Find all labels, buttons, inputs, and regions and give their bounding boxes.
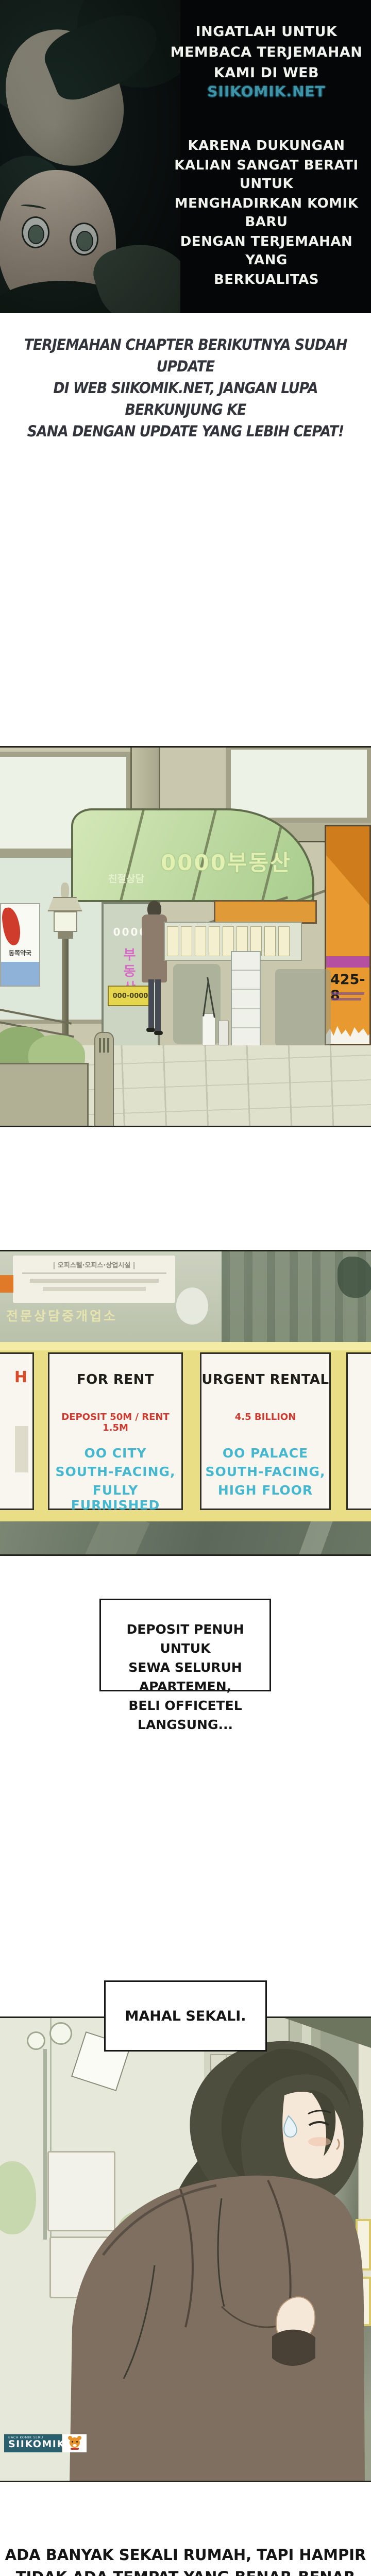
promo-line: MEMBACA TERJEMAHAN xyxy=(166,43,367,62)
card-detail-line: SOUTH-FACING, xyxy=(49,1464,181,1479)
counter-reflection-band xyxy=(0,1521,371,1556)
listing-paper xyxy=(167,926,178,956)
side-sign: 425-8 xyxy=(325,825,371,1045)
site-name: SIIKOMIK.NET xyxy=(207,83,326,100)
listing-card-urgent: URGENT RENTAL 4.5 BILLION OO PALACE SOUT… xyxy=(200,1352,331,1510)
street-lamp-glass xyxy=(54,911,77,932)
passerby-leg xyxy=(155,979,161,1032)
listing-paper xyxy=(209,926,220,956)
side-sign-shade xyxy=(326,826,371,909)
promo-line: BERKUALITAS xyxy=(166,270,367,289)
card-fragment-letter: H xyxy=(14,1368,27,1386)
card-price: 4.5 BILLION xyxy=(201,1412,329,1422)
board-top-strip xyxy=(0,1342,371,1350)
side-sign-skyline xyxy=(326,1021,371,1045)
door-phone-sign: 000-0000 xyxy=(108,986,153,1006)
pharmacy-symbol xyxy=(1,906,22,946)
bollard-slot xyxy=(99,1038,101,1053)
passerby-coat xyxy=(142,914,167,982)
window-notice-header: | 오피스텔·오피스·상업시설 | xyxy=(13,1256,175,1269)
awning-text-big: 0000부동산 xyxy=(161,845,292,877)
promo-panel: INGATLAH UNTUK MEMBACA TERJEMAHAN KAMI D… xyxy=(0,0,371,313)
listing-card-partial-right xyxy=(346,1352,371,1510)
window-notice-divider xyxy=(22,1273,166,1274)
bollard-slot xyxy=(107,1038,109,1053)
street-lamp-finial xyxy=(61,883,69,899)
listing-paper xyxy=(195,926,206,956)
card-detail-line: OO CITY xyxy=(49,1446,181,1461)
card-price: DEPOSIT 50M / RENT 1.5M xyxy=(49,1412,181,1433)
promo-line: MENGHADIRKAN KOMIK BARU xyxy=(166,194,367,231)
pharmacy-name: 동쪽약국 xyxy=(1,948,39,957)
card-faded-text xyxy=(15,1426,28,1472)
side-sign-smallline xyxy=(331,998,361,1001)
listing-board-panel: | 오피스텔·오피스·상업시설 | 전문상담중개업소 H FOR RENT DE… xyxy=(0,1250,371,1556)
plant-pot xyxy=(202,1013,215,1045)
promo-line: KAMI DI WEB SIIKOMIK.NET xyxy=(166,64,367,101)
passerby-shoe xyxy=(146,1028,155,1032)
orange-badge xyxy=(0,1275,13,1293)
awning-text-small: 친절상담 xyxy=(108,871,144,885)
side-sign-smallline xyxy=(331,992,364,995)
caption-line: MAHAL SEKALI. xyxy=(125,2007,246,2026)
narration-line: ADA BANYAK SEKALI RUMAH, TAPI HAMPIR xyxy=(0,2544,371,2566)
window-notice-sign: | 오피스텔·오피스·상업시설 | xyxy=(13,1256,175,1303)
office-window-top: | 오피스텔·오피스·상업시설 | 전문상담중개업소 xyxy=(0,1251,371,1342)
notice-line: TERJEMAHAN CHAPTER BERIKUTNYA SUDAH UPDA… xyxy=(15,334,356,377)
narration-houses: ADA BANYAK SEKALI RUMAH, TAPI HAMPIR TID… xyxy=(0,2544,371,2576)
window-notice-fadedline xyxy=(43,1287,146,1291)
woman-coat xyxy=(70,2176,365,2482)
card-detail-line: FULLY FURNISHED xyxy=(49,1483,181,1513)
promo-art-tint xyxy=(0,0,180,313)
promo-text-block: INGATLAH UNTUK MEMBACA TERJEMAHAN KAMI D… xyxy=(166,0,367,313)
promo-line-prefix: KAMI DI WEB xyxy=(214,65,319,81)
caption-deposit: DEPOSIT PENUH UNTUK SEWA SELURUH APARTEM… xyxy=(99,1599,271,1691)
tiger-mascot-box xyxy=(63,2434,87,2452)
card-detail-line: OO PALACE xyxy=(201,1446,329,1461)
card-detail-line: HIGH FLOOR xyxy=(201,1483,329,1498)
pharmacy-sign: 동쪽약국 xyxy=(0,903,40,987)
webtoon-page: { "promo": { "para1": { "l1": "INGATLAH … xyxy=(0,0,371,2576)
promo-artwork xyxy=(0,0,180,313)
promo-line: DENGAN TERJEMAHAN YANG xyxy=(166,232,367,269)
card-header: FOR RENT xyxy=(49,1372,181,1387)
caption-line: DEPOSIT PENUH UNTUK xyxy=(101,1620,269,1658)
plant-pot xyxy=(218,1021,229,1045)
listing-paper xyxy=(264,926,276,956)
tiger-mascot-icon xyxy=(70,2437,80,2448)
passerby-shoe xyxy=(154,1031,163,1035)
reflection-streak xyxy=(82,1521,149,1556)
listing-paper xyxy=(181,926,192,956)
siikomik-watermark: BACA KOMIK SERU SIIKOMIK xyxy=(4,2434,62,2452)
shop-awning: 친절상담 0000부동산 xyxy=(71,808,314,902)
bollard-slot xyxy=(103,1038,105,1053)
listing-card-partial-left: H xyxy=(0,1352,34,1510)
promo-line: KARENA DUKUNGAN xyxy=(166,137,367,155)
caption-line: BELI OFFICETEL LANGSUNG... xyxy=(101,1696,269,1734)
promo-line: INGATLAH UNTUK xyxy=(166,23,367,41)
caption-expensive: MAHAL SEKALI. xyxy=(104,1980,267,2052)
update-notice: TERJEMAHAN CHAPTER BERIKUTNYA SUDAH UPDA… xyxy=(15,334,356,442)
caption-line: SEWA SELURUH APARTEMEN, xyxy=(101,1658,269,1696)
coat-cuff xyxy=(272,2330,315,2366)
bollard xyxy=(94,1032,114,1127)
window-sub-text: 전문상담중개업소 xyxy=(6,1306,117,1325)
listing-paper xyxy=(278,926,290,956)
watermark-name: SIIKOMIK xyxy=(8,2439,62,2449)
notice-line: DI WEB SIIKOMIK.NET, JANGAN LUPA BERKUNJ… xyxy=(15,377,356,420)
magazine-rack xyxy=(231,951,261,1050)
storefront-band xyxy=(214,900,317,924)
awning-rib xyxy=(115,808,146,902)
passerby-leg xyxy=(148,979,154,1029)
narration-line: TIDAK ADA TEMPAT YANG BENAR-BENAR BISA xyxy=(0,2566,371,2576)
woman-figure xyxy=(0,2018,371,2482)
street-lamp-collar xyxy=(58,932,73,939)
card-detail-line: SOUTH-FACING, xyxy=(201,1464,329,1479)
reflection-streak xyxy=(294,1521,335,1556)
plant-silhouette xyxy=(338,1257,371,1298)
woman-blush xyxy=(308,2137,331,2146)
listing-card-for-rent: FOR RENT DEPOSIT 50M / RENT 1.5M OO CITY… xyxy=(48,1352,183,1510)
pharmacy-blue-strip xyxy=(1,962,39,986)
window-glare xyxy=(176,1287,208,1325)
promo-line: KALIAN SANGAT BERATI UNTUK xyxy=(166,156,367,193)
street-panel: 친절상담 0000부동산 425-8 0000 부동산 000-0000 xyxy=(0,746,371,1127)
notice-line: SANA DENGAN UPDATE YANG LEBIH CEPAT! xyxy=(15,420,356,442)
woman-panel: BACA KOMIK SERU SIIKOMIK xyxy=(0,2016,371,2482)
interior-silhouette xyxy=(275,969,331,1046)
planter-box xyxy=(0,1063,89,1127)
card-header: URGENT RENTAL xyxy=(201,1372,329,1387)
window-notice-fadedline xyxy=(30,1279,159,1283)
side-sign-stripe xyxy=(326,956,371,968)
